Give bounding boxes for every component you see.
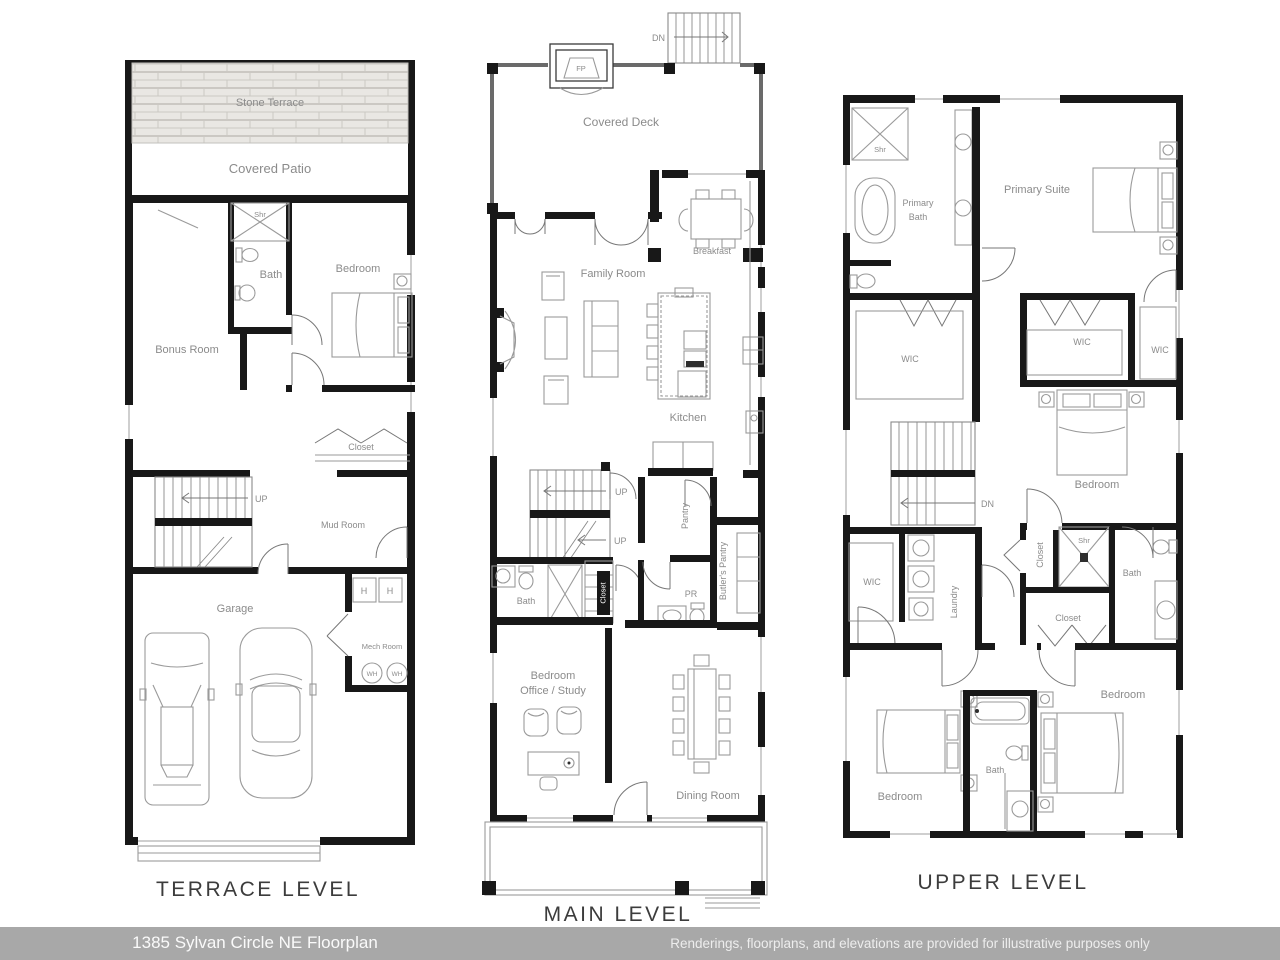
terrace-level-title: TERRACE LEVEL xyxy=(156,878,360,901)
terrace-patio: Stone Terrace Covered Patio xyxy=(125,60,415,203)
family-room-doors xyxy=(490,212,662,245)
wic-2-label: WIC xyxy=(1073,337,1091,347)
mid-bath-label: Bath xyxy=(1123,568,1142,578)
upper-level-title: UPPER LEVEL xyxy=(917,871,1088,894)
main-mid-walls xyxy=(490,617,763,783)
middle-bedroom: Bedroom xyxy=(1020,390,1183,530)
upper-level-plan: Shr Primary Bath Primary Suite WIC WIC W… xyxy=(835,85,1195,900)
water-heater-1-label: WH xyxy=(367,671,378,678)
wic-3-label: WIC xyxy=(1151,345,1169,355)
hall-closet-label: Closet xyxy=(1035,542,1045,568)
bedroom-office-label-1: Bedroom xyxy=(531,670,576,682)
hall-shower-label: Shr xyxy=(1078,536,1090,545)
footer-address: 1385 Sylvan Circle NE Floorplan xyxy=(90,933,420,953)
bedroom-label: Bedroom xyxy=(336,263,381,275)
wic-1-label: WIC xyxy=(901,354,919,364)
bedroom-office-study: Bedroom Office / Study xyxy=(520,670,586,790)
primary-bath-label-2: Bath xyxy=(909,212,928,222)
dining-room: Dining Room xyxy=(673,655,740,802)
main-bath: Bath Closet xyxy=(490,557,642,623)
main-bath-label: Bath xyxy=(517,596,536,606)
wic-4-label: WIC xyxy=(863,577,881,587)
garage-truck-icon xyxy=(140,633,214,805)
terrace-bath: Shr Bath xyxy=(231,203,322,345)
breakfast-label: Breakfast xyxy=(693,246,732,256)
laundry-label: Laundry xyxy=(949,585,959,618)
garage-label: Garage xyxy=(217,603,254,615)
family-room-label: Family Room xyxy=(581,268,646,280)
footer-disclaimer: Renderings, floorplans, and elevations a… xyxy=(640,936,1180,951)
terrace-bonus-room: Bonus Room xyxy=(155,210,219,356)
primary-bath: Shr Primary Bath xyxy=(843,107,1015,288)
dn-label: DN xyxy=(981,499,994,509)
bottom-right-bedroom-label: Bedroom xyxy=(1101,689,1146,701)
covered-deck-label: Covered Deck xyxy=(583,115,660,129)
mud-room-label: Mud Room xyxy=(321,520,365,530)
butlers-pantry-label: Butler's Pantry xyxy=(718,541,728,600)
main-level-title: MAIN LEVEL xyxy=(544,903,693,926)
dn-label: DN xyxy=(652,33,665,43)
bath-label: Bath xyxy=(260,269,283,281)
bottom-bedroom-right: Bedroom xyxy=(1037,643,1183,812)
powder-room-label: PR xyxy=(685,589,698,599)
front-porch xyxy=(482,822,767,908)
kitchen-label: Kitchen xyxy=(670,412,707,424)
stone-terrace-label: Stone Terrace xyxy=(236,97,304,109)
terrace-bedroom: Bedroom xyxy=(292,263,412,385)
bedroom-office-label-2: Office / Study xyxy=(520,685,586,697)
bottom-bath-label: Bath xyxy=(986,765,1005,775)
upper-wic-row: WIC WIC WIC xyxy=(843,247,1183,422)
terrace-level-plan: Stone Terrace Covered Patio Shr Bath xyxy=(100,40,440,925)
footer-bar: 1385 Sylvan Circle NE Floorplan Renderin… xyxy=(0,927,1280,960)
upper-hall-closets: Closet Shr Closet xyxy=(1004,527,1115,646)
main-closet-label: Closet xyxy=(599,581,608,603)
water-heater-2-label: WH xyxy=(392,671,403,678)
terrace-exterior-walls xyxy=(124,195,417,861)
upper-exterior-walls xyxy=(842,94,1184,839)
bottom-closet-label: Closet xyxy=(1055,613,1081,623)
primary-bath-label-1: Primary xyxy=(903,198,934,208)
middle-bedroom-label: Bedroom xyxy=(1075,479,1120,491)
up-label-2: UP xyxy=(614,536,627,546)
main-stairs: UP UP xyxy=(530,462,636,562)
primary-suite-label: Primary Suite xyxy=(1004,184,1070,196)
floorplan-sheet: Stone Terrace Covered Patio Shr Bath xyxy=(0,0,1280,960)
hvac-1-label: H xyxy=(361,586,368,596)
terrace-mud-room: Mud Room xyxy=(321,520,407,558)
upper-mid-bath: Bath xyxy=(1122,527,1177,639)
closet-label: Closet xyxy=(348,442,374,452)
dining-room-label: Dining Room xyxy=(676,790,740,802)
fireplace-label: FP xyxy=(576,64,586,73)
pantry-label: Pantry xyxy=(680,502,690,529)
covered-patio-label: Covered Patio xyxy=(229,161,311,176)
primary-shower-label: Shr xyxy=(874,145,886,154)
main-level-plan: DN FP Covered Deck xyxy=(460,5,800,927)
breakfast-nook: Breakfast xyxy=(648,190,763,262)
primary-suite: Primary Suite xyxy=(1004,142,1177,254)
upper-wic-4: WIC xyxy=(849,534,905,644)
powder-room: PR xyxy=(638,555,717,628)
up-label: UP xyxy=(255,494,268,504)
bonus-room-label: Bonus Room xyxy=(155,344,219,356)
kitchen: Kitchen xyxy=(647,181,763,465)
terrace-stairs: UP xyxy=(155,477,268,567)
hvac-2-label: H xyxy=(387,586,394,596)
butlers-pantry: Butler's Pantry xyxy=(718,533,760,613)
terrace-garage: Garage H H Mech Room WH WH xyxy=(217,544,415,692)
pantry: Pantry xyxy=(638,442,763,628)
shower-label: Shr xyxy=(254,210,266,219)
bottom-left-bedroom-label: Bedroom xyxy=(878,791,923,803)
covered-deck: FP Covered Deck xyxy=(487,44,765,215)
terrace-closet: Closet xyxy=(315,429,410,461)
family-room: Family Room xyxy=(492,268,645,404)
laundry: Laundry xyxy=(908,535,1014,620)
mech-room-label: Mech Room xyxy=(362,642,402,651)
up-label-1: UP xyxy=(615,487,628,497)
garage-sedan-icon xyxy=(236,628,316,798)
deck-stairs: DN xyxy=(652,13,740,63)
bottom-bath: Bath xyxy=(963,690,1037,831)
